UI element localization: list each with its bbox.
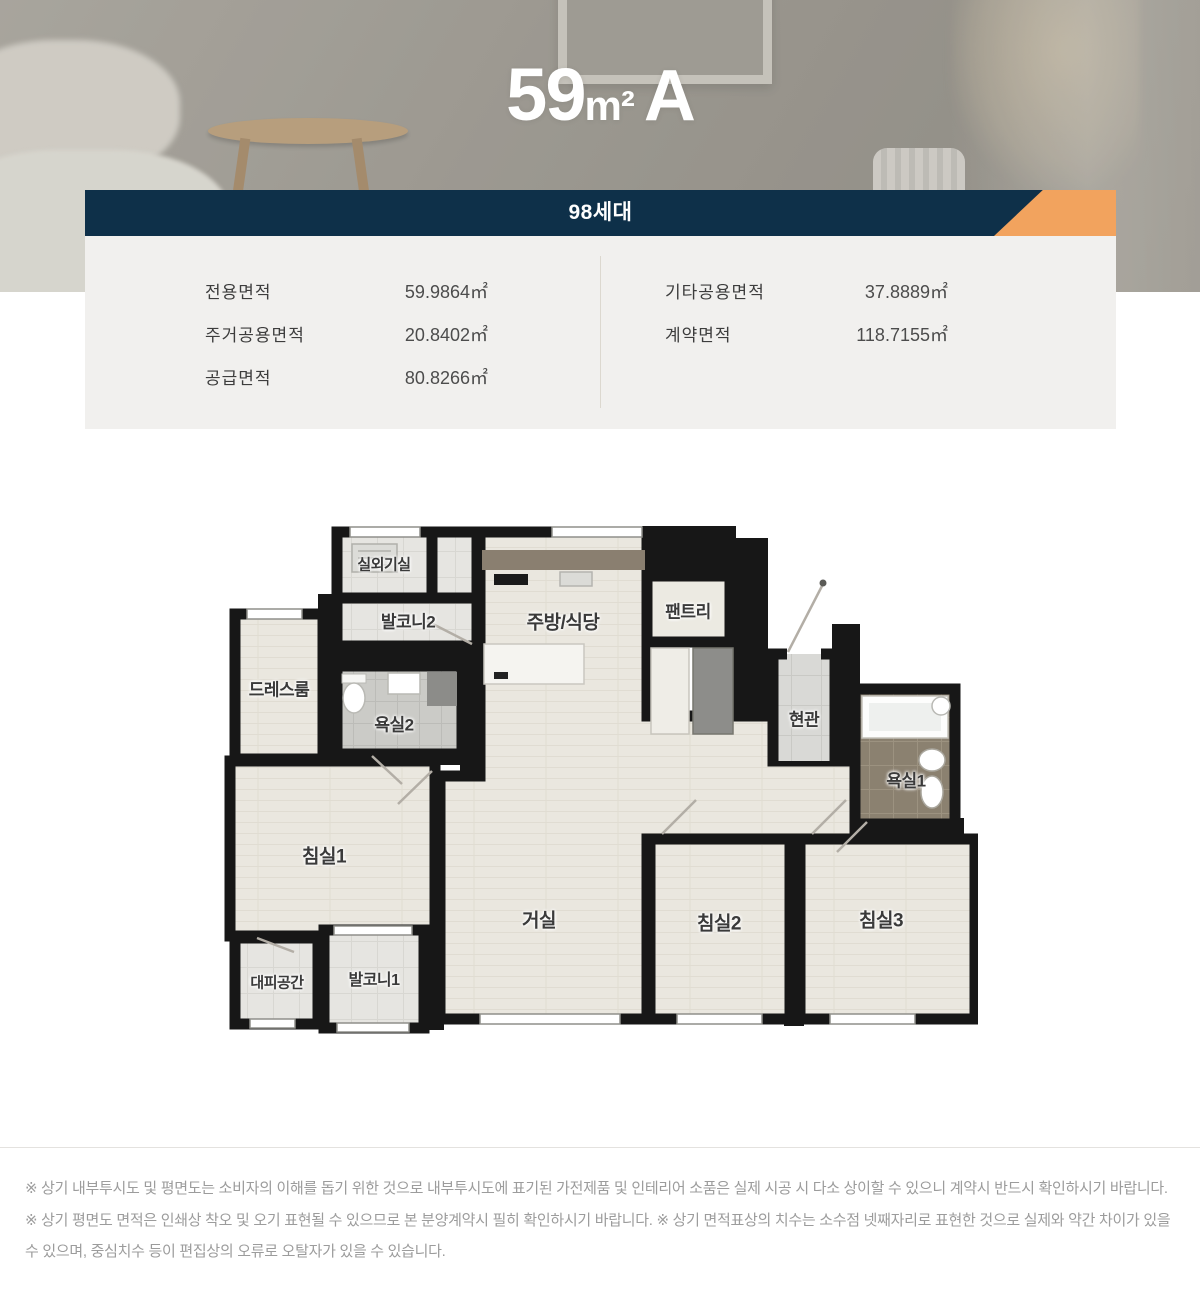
room-label-refuge-space: 대피공간 [250,972,303,993]
area-value: 118.7155㎡ [813,321,948,347]
area-label: 전용면적 [205,278,353,303]
household-band: 98세대 [85,190,1116,236]
room-label-living: 거실 [522,906,556,933]
room-label-outdoor-unit-room: 실외기실 [357,553,410,574]
area-row-contract: 계약면적 118.7155㎡ [665,321,948,347]
area-row-exclusive: 전용면적 59.9864㎡ [205,278,488,304]
unit-size-unit: m² [584,82,633,129]
room-label-bathroom2: 욕실2 [374,711,413,736]
area-value: 37.8889㎡ [813,278,948,304]
area-label: 계약면적 [665,321,813,346]
room-label-entrance: 현관 [789,706,819,731]
unit-type-title: 59m²A [0,58,1200,132]
area-label: 공급면적 [205,364,353,389]
area-label: 기타공용면적 [665,278,813,303]
area-value: 80.8266㎡ [353,364,488,390]
area-value: 20.8402㎡ [353,321,488,347]
unit-size-number: 59 [506,53,584,136]
disclaimer-text: ※ 상기 내부투시도 및 평면도는 소비자의 이해를 돕기 위한 것으로 내부투… [25,1173,1175,1268]
floorplan: 실외기실발코니2주방/식당팬트리드레스룸욕실2현관욕실1침실1거실침실2침실3대… [222,526,978,1042]
room-label-bedroom3: 침실3 [859,906,903,933]
area-info-panel: 전용면적 59.9864㎡ 주거공용면적 20.8402㎡ 공급면적 80.82… [85,236,1116,429]
area-row-supply: 공급면적 80.8266㎡ [205,364,488,390]
entry-door-pivot [820,580,827,587]
room-label-bedroom1: 침실1 [302,842,346,869]
room-label-pantry: 팬트리 [665,598,710,623]
area-value: 59.9864㎡ [353,278,488,304]
room-label-bathroom1: 욕실1 [886,767,925,792]
room-label-kitchen-dining: 주방/식당 [527,608,600,635]
room-label-balcony2: 발코니2 [381,608,435,633]
area-row-residential-common: 주거공용면적 20.8402㎡ [205,321,488,347]
household-count: 98세대 [85,190,1116,236]
area-row-other-common: 기타공용면적 37.8889㎡ [665,278,948,304]
room-label-balcony1: 발코니1 [348,966,399,990]
room-label-bedroom2: 침실2 [697,909,741,936]
area-info-left-column: 전용면적 59.9864㎡ 주거공용면적 20.8402㎡ 공급면적 80.82… [85,236,600,407]
kitchen-island [484,644,584,684]
area-info-right-column: 기타공용면적 37.8889㎡ 계약면적 118.7155㎡ [600,256,1116,408]
disclaimer-section: ※ 상기 내부투시도 및 평면도는 소비자의 이해를 돕기 위한 것으로 내부투… [0,1147,1200,1298]
floorplan-svg [222,526,978,1042]
room-label-dressroom: 드레스룸 [249,676,310,701]
unit-type-letter: A [644,56,694,136]
top-section: 59m²A 98세대 전용면적 59.9864㎡ 주거공용면적 20.8402㎡… [0,0,1200,430]
area-label: 주거공용면적 [205,321,353,346]
